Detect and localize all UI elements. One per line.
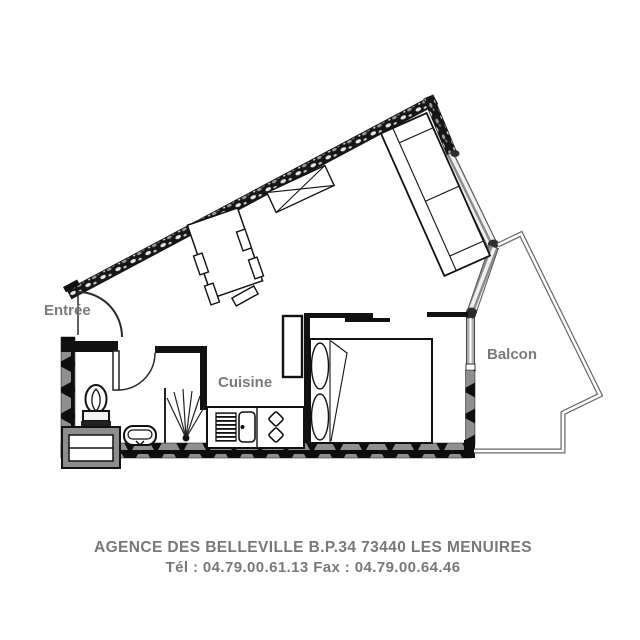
sink-icon: [239, 412, 255, 442]
window-joint: [451, 150, 460, 157]
toilet-icon: [81, 385, 111, 426]
bedroom-top-wall-c: [427, 312, 468, 317]
bedroom-top-wall-a: [304, 313, 373, 318]
shower-right-wall: [200, 346, 207, 410]
right-lower-wall: [466, 370, 476, 445]
bathroom-top-wall: [61, 341, 118, 352]
vent-icon: [216, 413, 236, 441]
bathroom-door: [113, 351, 155, 390]
bathroom-cabinet-icon: [62, 427, 120, 468]
balcony-label: Balcon: [487, 346, 537, 363]
shower-top-wall: [155, 346, 206, 353]
pillow: [312, 343, 329, 389]
kitchen-counter: [207, 407, 304, 448]
bottom-right-corner: [464, 440, 475, 458]
basket-icon: [124, 426, 156, 445]
pillow: [312, 394, 329, 440]
shower-icon: [165, 388, 206, 443]
agency-address-line: AGENCE DES BELLEVILLE B.P.34 73440 LES M…: [0, 539, 626, 557]
kitchen-label: Cuisine: [218, 374, 272, 391]
fridge-icon: [283, 316, 302, 377]
entrance-label: Entrée: [44, 302, 91, 319]
bedroom-top-wall-b: [345, 318, 390, 322]
bedroom-window-center: [470, 318, 472, 365]
bed-icon: [310, 339, 432, 443]
agency-phone-line: Tél : 04.79.00.61.13 Fax : 04.79.00.64.4…: [0, 559, 626, 576]
dining-table-icon: [187, 208, 262, 298]
balcony-outline: [474, 234, 600, 451]
floor-plan-page: Entrée Cuisine Balcon AGENCE DES BELLEVI…: [0, 0, 640, 640]
